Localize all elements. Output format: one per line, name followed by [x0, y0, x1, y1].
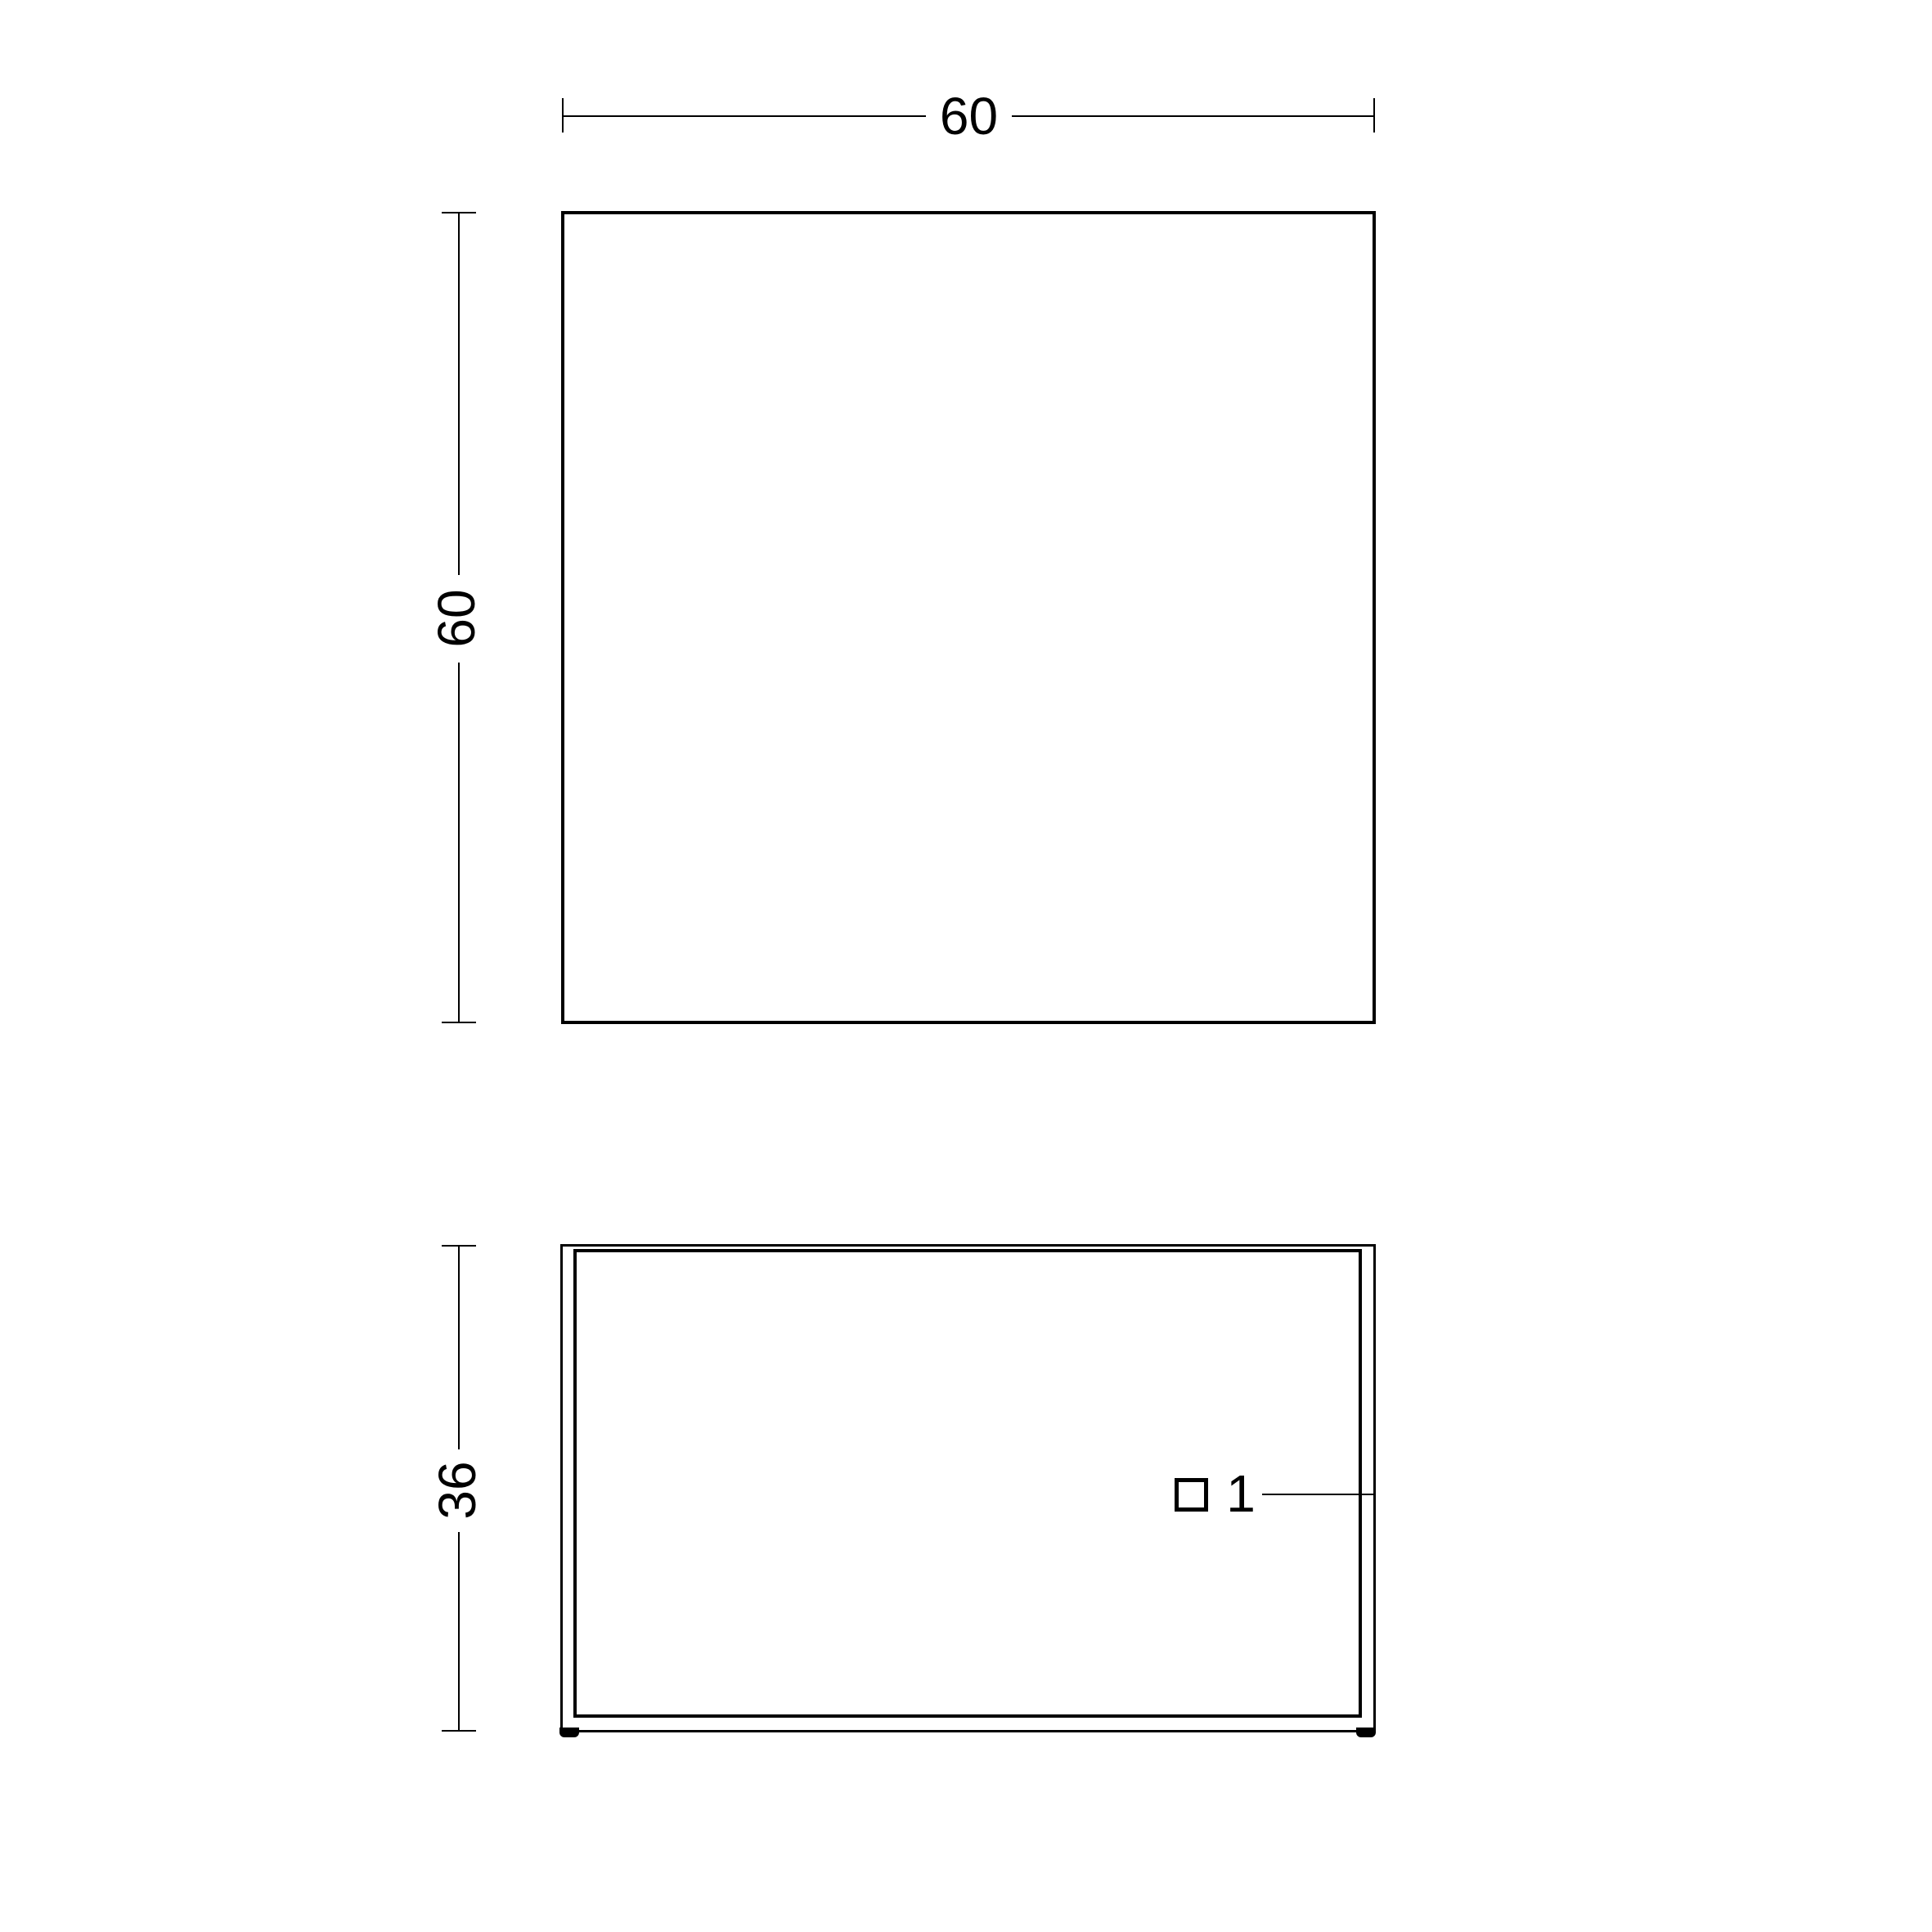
dimension-end-tick	[442, 1245, 476, 1247]
callout-leader-line	[1262, 1494, 1375, 1495]
dimension-line-segment	[563, 115, 926, 117]
plan-width-dimension-label: 60	[926, 90, 1012, 142]
dimension-line-segment	[458, 1532, 460, 1731]
dimension-end-tick	[442, 1022, 476, 1023]
dimension-end-tick	[562, 98, 564, 133]
plan-depth-dimension-label: 60	[430, 569, 483, 667]
square-marker-icon	[1175, 1478, 1208, 1512]
dimension-end-tick	[442, 1730, 476, 1732]
technical-drawing-canvas: 60 60 36 1	[0, 0, 1932, 1932]
dimension-line-segment	[458, 1247, 460, 1449]
front-view-left-foot	[559, 1728, 579, 1737]
front-view-right-foot	[1356, 1728, 1376, 1737]
dimension-end-tick	[442, 212, 476, 213]
part-callout-label: 1	[1216, 1467, 1265, 1520]
front-height-dimension-label: 36	[431, 1441, 483, 1539]
dimension-end-tick	[1373, 98, 1375, 133]
plan-view-outline	[561, 211, 1376, 1024]
dimension-line-segment	[1012, 115, 1374, 117]
dimension-line-segment	[458, 213, 460, 575]
dimension-line-segment	[458, 663, 460, 1022]
